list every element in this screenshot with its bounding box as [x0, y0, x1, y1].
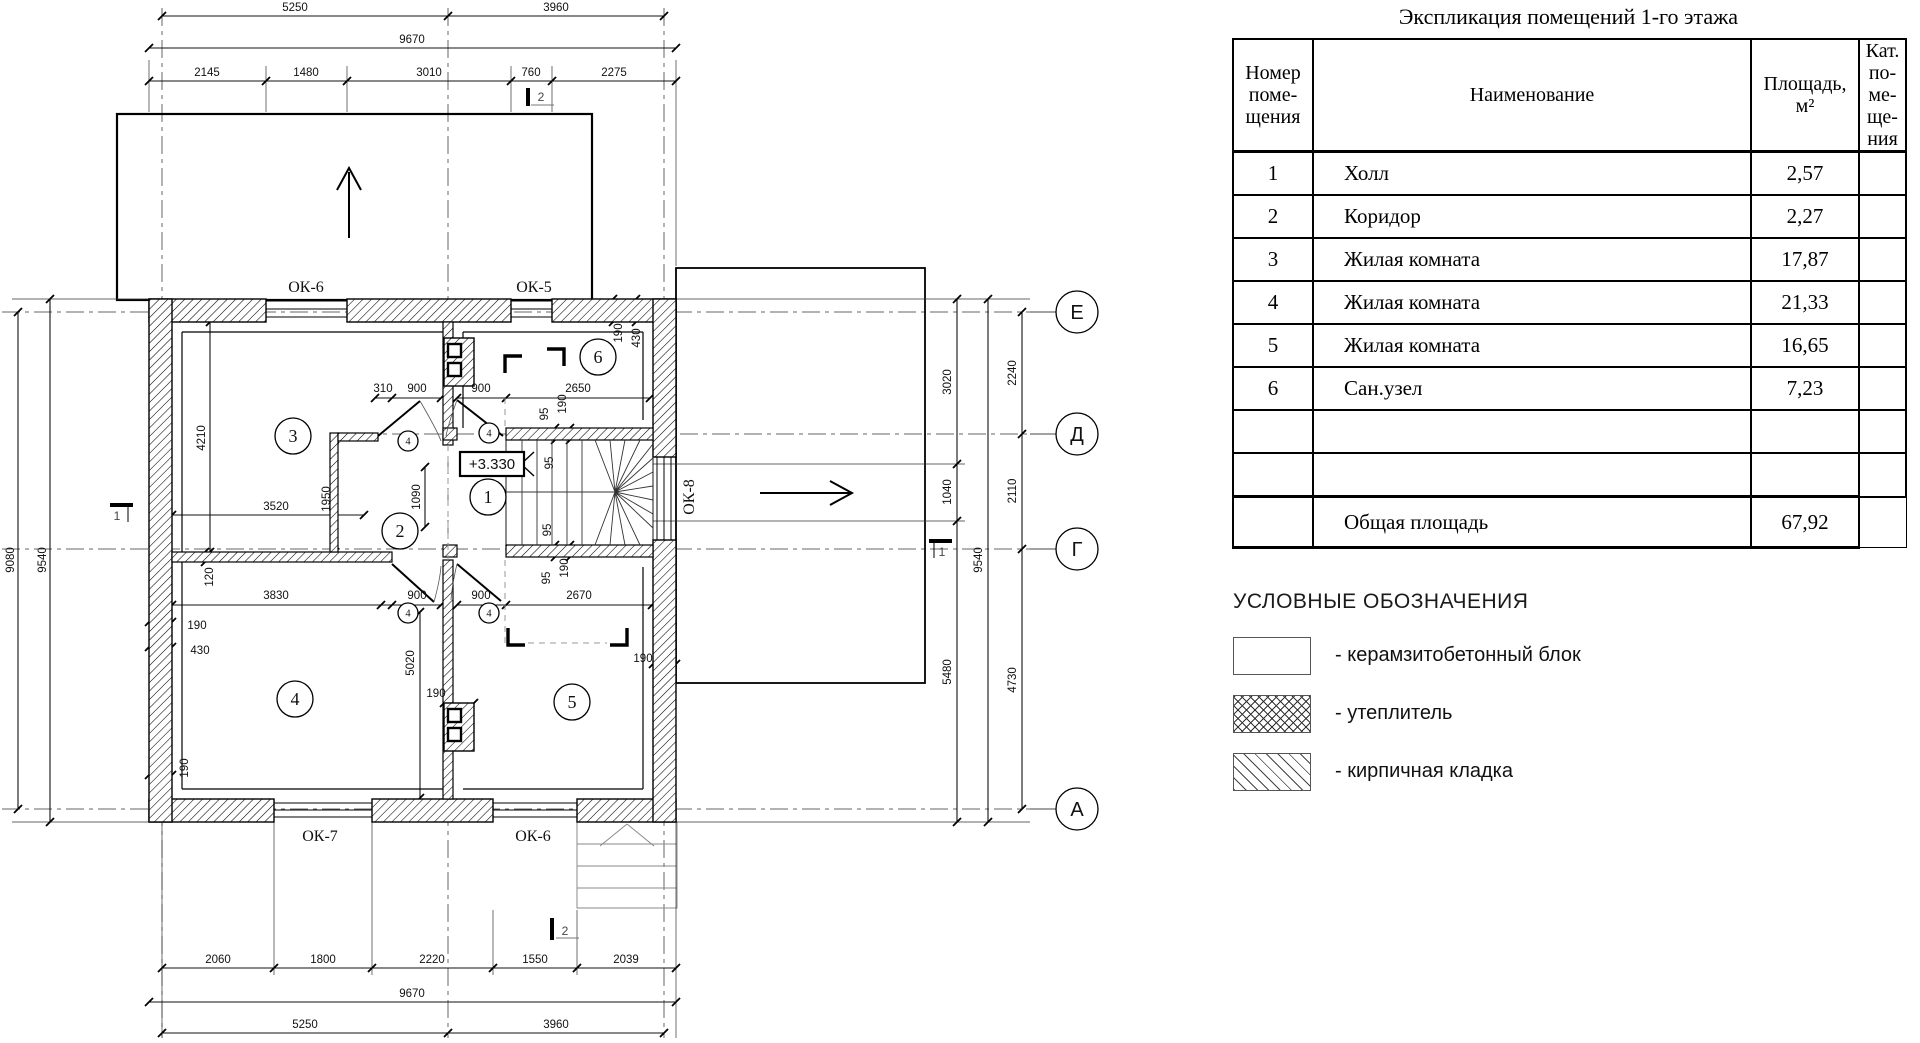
dimension-label: 1550 [522, 954, 548, 966]
dimension-label: 4210 [196, 425, 208, 451]
table-row: 2Коридор2,27 [1233, 195, 1906, 238]
col-header-category: Кат.по-ме-ще-ния [1859, 39, 1906, 152]
door-mark: 4 [405, 437, 411, 448]
dimension-label: 900 [471, 383, 490, 395]
dimension-label: 2275 [601, 67, 627, 79]
dimension-label: 5250 [292, 1019, 318, 1031]
drawing-sheet: 5250396096702145148030107602275206018002… [0, 0, 1920, 1043]
dimension-label: 95 [544, 457, 556, 470]
table-row: 3Жилая комната17,87 [1233, 238, 1906, 281]
table-row: 6Сан.узел7,23 [1233, 367, 1906, 410]
window-ok6-bottom [493, 803, 577, 817]
entrance-steps [577, 822, 677, 908]
dimension-label: 1480 [293, 67, 319, 79]
dimension-label: 3010 [416, 67, 442, 79]
axis-label: А [1070, 799, 1084, 821]
dimension-label: 190 [633, 653, 652, 665]
dimension-label: 5480 [942, 659, 954, 685]
room-number: 1 [484, 487, 493, 507]
staircase [506, 440, 653, 545]
table-row [1233, 453, 1906, 497]
dimension-label: 900 [407, 383, 426, 395]
dimension-label: 190 [557, 394, 569, 413]
room-number: 5 [568, 692, 577, 712]
dimension-label: 95 [542, 524, 554, 537]
legend-swatch-crosshatch [1233, 695, 1311, 733]
table-row: 5Жилая комната16,65 [1233, 324, 1906, 367]
room-number: 2 [396, 521, 405, 541]
up-arrow-icon [337, 168, 361, 238]
col-header-area: Площадь,м² [1751, 39, 1859, 152]
dimension-label: 5250 [282, 2, 308, 14]
dimension-label: 9540 [37, 547, 49, 573]
dimension-label: 2110 [1007, 479, 1019, 504]
axis-label: Д [1070, 424, 1084, 446]
side-porch-outline [676, 268, 925, 683]
dimension-label: 95 [539, 408, 551, 421]
dimension-label: 3520 [263, 501, 289, 513]
room-number: 3 [289, 426, 298, 446]
section-mark-label: 2 [538, 90, 545, 104]
dimension-label: 760 [521, 67, 540, 79]
legend-title: УСЛОВНЫЕ ОБОЗНАЧЕНИЯ [1233, 590, 1581, 614]
dimension-label: 190 [426, 688, 445, 700]
dimension-label: 2145 [194, 67, 220, 79]
dimension-label: 5020 [405, 650, 417, 676]
window-ok6-top [266, 301, 347, 317]
legend-label: - утеплитель [1335, 702, 1452, 725]
dimension-label: 3960 [543, 1019, 569, 1031]
dimension-label: 190 [179, 758, 191, 777]
axis-label: Г [1072, 539, 1083, 561]
dimension-label: 3830 [263, 590, 289, 602]
window-ok8-right [657, 457, 671, 540]
dimension-label: 9670 [399, 34, 425, 46]
dimension-label: 9670 [399, 988, 425, 1000]
dimension-label: 1040 [942, 479, 954, 505]
legend: УСЛОВНЫЕ ОБОЗНАЧЕНИЯ - керамзитобетонный… [1233, 590, 1581, 810]
dimension-label: 430 [631, 328, 643, 347]
legend-label: - керамзитобетонный блок [1335, 644, 1581, 667]
table-row: 4Жилая комната21,33 [1233, 281, 1906, 324]
window-label: ОК-7 [302, 828, 338, 845]
window-label: ОК-5 [516, 279, 552, 296]
legend-swatch-diagonal [1233, 753, 1311, 791]
col-header-number: Номерпоме-щения [1233, 39, 1313, 152]
dimension-label: 1090 [411, 484, 423, 510]
section-mark-label: 2 [562, 924, 569, 938]
dimension-label: 95 [541, 572, 553, 585]
window-label: ОК-8 [681, 479, 698, 515]
dimension-label: 1800 [310, 954, 336, 966]
table-row: 1Холл2,57 [1233, 152, 1906, 196]
table-row [1233, 410, 1906, 453]
dimension-label: 2670 [566, 590, 592, 602]
window-label: ОК-6 [515, 828, 551, 845]
dimension-label: 3960 [543, 2, 569, 14]
window-ok7-bottom [274, 803, 372, 817]
dimension-label: 2650 [565, 383, 591, 395]
legend-swatch-plain [1233, 637, 1311, 675]
legend-label: - кирпичная кладка [1335, 760, 1513, 783]
spec-table: Номерпоме-щения Наименование Площадь,м² … [1232, 38, 1907, 549]
axis-leaders [1030, 312, 1056, 809]
section-mark-label: 1 [114, 509, 121, 523]
spec-table-title: Экспликация помещений 1-го этажа [1232, 4, 1905, 30]
col-header-name: Наименование [1313, 39, 1751, 152]
dimension-label: 2240 [1007, 360, 1019, 386]
floor-plan: 5250396096702145148030107602275206018002… [0, 0, 1190, 1043]
table-total-row: Общая площадь67,92 [1233, 497, 1906, 548]
section-mark-label: 1 [939, 545, 946, 559]
window-label: ОК-6 [288, 279, 324, 296]
dimension-label: 120 [204, 567, 216, 586]
dimension-label: 900 [471, 590, 490, 602]
level-mark: +3.330 [469, 456, 515, 473]
dimension-label: 190 [613, 323, 625, 342]
legend-item: - утеплитель [1233, 694, 1581, 733]
dimension-label: 9540 [973, 547, 985, 573]
dimension-label: 2060 [205, 954, 231, 966]
room-number: 6 [594, 347, 603, 367]
upper-terrace-outline [117, 114, 592, 300]
dimension-label: 2039 [613, 954, 639, 966]
door-mark: 4 [486, 429, 492, 440]
dimension-label: 430 [190, 645, 209, 657]
axis-label: Е [1070, 302, 1083, 324]
dimension-label: 310 [373, 383, 392, 395]
right-arrow-icon [760, 481, 852, 505]
window-ok5-top [511, 301, 552, 317]
dimension-label: 4730 [1007, 667, 1019, 693]
legend-item: - керамзитобетонный блок [1233, 636, 1581, 675]
dimension-label: 1950 [321, 486, 333, 512]
room-number: 4 [291, 689, 300, 709]
dimension-label: 9080 [5, 547, 17, 573]
door-mark: 4 [405, 609, 411, 620]
door-mark: 4 [486, 609, 492, 620]
legend-item: - кирпичная кладка [1233, 752, 1581, 791]
dimension-label: 190 [187, 620, 206, 632]
dimension-label: 900 [407, 590, 426, 602]
dimension-label: 190 [559, 558, 571, 577]
dimension-label: 3020 [942, 369, 954, 395]
dimension-label: 2220 [419, 954, 445, 966]
